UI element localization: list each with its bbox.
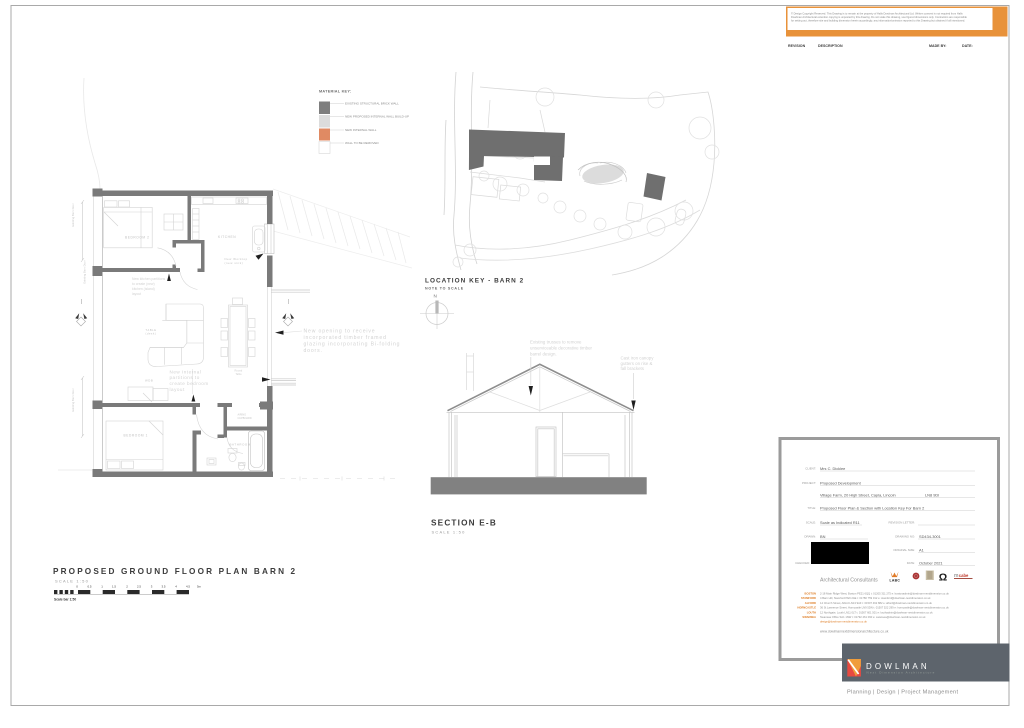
svg-text:Architectural Consultants: Architectural Consultants bbox=[820, 578, 878, 584]
svg-text:(desk): (desk) bbox=[146, 332, 157, 336]
svg-text:BOSTON: BOSTON bbox=[805, 592, 817, 596]
svg-text:New Internal: New Internal bbox=[170, 369, 202, 374]
svg-text:for setting out, therefore sit: for setting out, therefore site and buil… bbox=[791, 19, 965, 23]
svg-text:CLIENT:: CLIENT: bbox=[805, 467, 816, 471]
svg-text:Existing Barn Door: Existing Barn Door bbox=[83, 260, 87, 283]
svg-text:New opening to receive: New opening to receive bbox=[304, 329, 376, 335]
svg-text:NOTE TO SCALE: NOTE TO SCALE bbox=[425, 287, 464, 291]
svg-text:SCALE 1:50: SCALE 1:50 bbox=[432, 530, 466, 535]
svg-text:New kitchen partitions: New kitchen partitions bbox=[132, 277, 165, 281]
svg-text:partitions to: partitions to bbox=[170, 375, 200, 380]
svg-text:layout: layout bbox=[132, 292, 141, 296]
svg-text:2-18 Main Ridge West, Boston P: 2-18 Main Ridge West, Boston PE21 6QQ t:… bbox=[820, 592, 950, 596]
svg-text:36 St Lawrence Street, Horncas: 36 St Lawrence Street, Horncastle LN9 5D… bbox=[820, 606, 949, 610]
svg-text:SCALE 1:50: SCALE 1:50 bbox=[55, 579, 89, 584]
svg-text:Ω: Ω bbox=[939, 572, 947, 584]
svg-text:Existing Barn Door: Existing Barn Door bbox=[71, 388, 75, 411]
svg-text:cabe: cabe bbox=[959, 573, 969, 578]
svg-text:SECTION E-B: SECTION E-B bbox=[431, 519, 497, 528]
svg-text:Existing Barn Door: Existing Barn Door bbox=[71, 203, 75, 226]
svg-text:0.5: 0.5 bbox=[87, 585, 91, 589]
svg-text:Village Farm, 20 High Street,: Village Farm, 20 High Street, Capla, Lin… bbox=[820, 493, 896, 498]
svg-text:WDB: WDB bbox=[145, 379, 153, 383]
svg-text:PROPOSED GROUND FLOOR PLAN BA: PROPOSED GROUND FLOOR PLAN BARN 2 bbox=[53, 567, 297, 576]
svg-text:© Design Copyright Reserved. T: © Design Copyright Reserved. This Drawin… bbox=[791, 12, 963, 16]
svg-text:Proposed Development: Proposed Development bbox=[820, 481, 862, 486]
svg-text:layout: layout bbox=[170, 387, 185, 392]
svg-text:EXISTING STRUCTURAL BRICK WALL: EXISTING STRUCTURAL BRICK WALL bbox=[345, 102, 399, 106]
svg-text:Proposed Floor Plan & Section: Proposed Floor Plan & Section with Locat… bbox=[820, 506, 924, 511]
svg-text:unserviceable decorative timbe: unserviceable decorative timber bbox=[530, 346, 593, 351]
svg-text:A1: A1 bbox=[919, 548, 924, 553]
svg-text:Existing trusses to remove: Existing trusses to remove bbox=[530, 340, 582, 345]
svg-text:Scale as Indicated R11: Scale as Indicated R11 bbox=[820, 520, 860, 525]
svg-text:BN: BN bbox=[820, 534, 826, 539]
svg-text:LN8 9DI: LN8 9DI bbox=[925, 493, 939, 498]
svg-text:CUPBOARD: CUPBOARD bbox=[238, 417, 252, 420]
svg-text:SD434-3001: SD434-3001 bbox=[919, 534, 941, 539]
svg-text:gutters on rise &: gutters on rise & bbox=[621, 361, 653, 366]
svg-text:ALFORD: ALFORD bbox=[805, 601, 816, 605]
svg-text:SCALE:: SCALE: bbox=[806, 521, 816, 525]
svg-text:WALL TO BE REMOVED: WALL TO BE REMOVED bbox=[345, 141, 380, 145]
svg-text:1.5: 1.5 bbox=[112, 585, 116, 589]
svg-text:barrel design.: barrel design. bbox=[530, 352, 557, 357]
svg-text:HORNCASTLE: HORNCASTLE bbox=[797, 606, 816, 610]
svg-text:to create (new): to create (new) bbox=[132, 282, 155, 286]
svg-text:NEW INTERNAL WALL: NEW INTERNAL WALL bbox=[345, 128, 377, 132]
svg-text:kitchen (island): kitchen (island) bbox=[132, 287, 155, 291]
svg-text:4.5: 4.5 bbox=[186, 585, 190, 589]
svg-text:LOCATION KEY - BARN 2: LOCATION KEY - BARN 2 bbox=[425, 278, 524, 285]
svg-text:14 Church Street, Alford LN13: 14 Church Street, Alford LN13 9AF t: 015… bbox=[820, 601, 932, 605]
svg-text:DATE:: DATE: bbox=[962, 44, 973, 48]
svg-text:Table: Table bbox=[236, 372, 243, 376]
svg-text:(new sink): (new sink) bbox=[225, 261, 244, 265]
svg-text:Swansea Office SA1 1NW t: 017: Swansea Office SA1 1NW t: 01792 461 090 … bbox=[820, 615, 926, 619]
svg-text:REVISION LETTER:: REVISION LETTER: bbox=[888, 521, 915, 525]
svg-text:2.5: 2.5 bbox=[137, 585, 141, 589]
svg-text:CHECKED:: CHECKED: bbox=[795, 561, 810, 565]
svg-text:fall brackets: fall brackets bbox=[621, 366, 645, 371]
svg-text:TABLE: TABLE bbox=[146, 328, 157, 332]
svg-text:STAMFORD: STAMFORD bbox=[801, 596, 816, 600]
svg-text:NEW PROPOSED INTERNAL WALL BUI: NEW PROPOSED INTERNAL WALL BUILD-UP bbox=[345, 115, 409, 119]
svg-text:PROJECT:: PROJECT: bbox=[802, 481, 816, 485]
svg-text:DATE:: DATE: bbox=[907, 561, 915, 565]
svg-text:Round: Round bbox=[235, 369, 243, 373]
svg-text:4 Barn Hill, Stamford PE9 2AE: 4 Barn Hill, Stamford PE9 2AE t: 01780 7… bbox=[820, 596, 931, 600]
svg-text:N: N bbox=[434, 294, 437, 299]
svg-text:October 2021: October 2021 bbox=[919, 561, 943, 566]
svg-text:BATHROOM: BATHROOM bbox=[230, 443, 251, 447]
svg-text:Dowlman Architectural extentio: Dowlman Architectural extention copying … bbox=[791, 15, 967, 19]
svg-text:5m: 5m bbox=[197, 585, 202, 589]
svg-text:BEDROOM 1: BEDROOM 1 bbox=[124, 434, 149, 438]
svg-text:3.5: 3.5 bbox=[161, 585, 165, 589]
svg-text:DRAWN:: DRAWN: bbox=[804, 535, 816, 539]
svg-text:LOUTH: LOUTH bbox=[807, 610, 816, 614]
svg-text:create bedroom: create bedroom bbox=[170, 381, 209, 386]
svg-text:Planning | Design | Project Ma: Planning | Design | Project Management bbox=[847, 690, 958, 696]
svg-text:TITLE:: TITLE: bbox=[807, 506, 816, 510]
svg-text:Cast iron canopy: Cast iron canopy bbox=[621, 356, 655, 361]
svg-text:MATERIAL KEY:: MATERIAL KEY: bbox=[319, 90, 351, 94]
svg-text:incorporated timber framed: incorporated timber framed bbox=[304, 335, 387, 341]
svg-text:www.dowlmannextdimensionarchit: www.dowlmannextdimensionarchitecture.co.… bbox=[820, 630, 889, 634]
svg-text:Next Dimension Architecture: Next Dimension Architecture bbox=[867, 671, 936, 675]
svg-text:DRAWING NO:: DRAWING NO: bbox=[895, 535, 915, 539]
svg-text:glazing incorporating Bi-foldi: glazing incorporating Bi-folding bbox=[304, 342, 401, 348]
svg-text:MADE BY:: MADE BY: bbox=[929, 44, 947, 48]
svg-text:doors.: doors. bbox=[304, 348, 323, 354]
svg-text:KITCHEN: KITCHEN bbox=[218, 235, 236, 239]
svg-text:BEDROOM 2: BEDROOM 2 bbox=[125, 236, 150, 240]
svg-text:DESCRIPTION: DESCRIPTION bbox=[818, 44, 843, 48]
svg-text:Mrs C. Dicklee: Mrs C. Dicklee bbox=[820, 466, 845, 471]
svg-text:Scale bar 1:50: Scale bar 1:50 bbox=[54, 598, 76, 602]
svg-text:SWANSEA: SWANSEA bbox=[802, 615, 816, 619]
svg-text:12 Northgate, Louth LN11 0LT: 12 Northgate, Louth LN11 0LT t: 01507 60… bbox=[820, 610, 933, 614]
svg-text:design@dowlman-nextdimension.c: design@dowlman-nextdimension.co.uk bbox=[820, 620, 867, 624]
svg-text:ORIGINAL SIZE:: ORIGINAL SIZE: bbox=[893, 548, 915, 552]
svg-text:REVISION: REVISION bbox=[788, 44, 806, 48]
svg-text:LABC: LABC bbox=[890, 579, 901, 583]
